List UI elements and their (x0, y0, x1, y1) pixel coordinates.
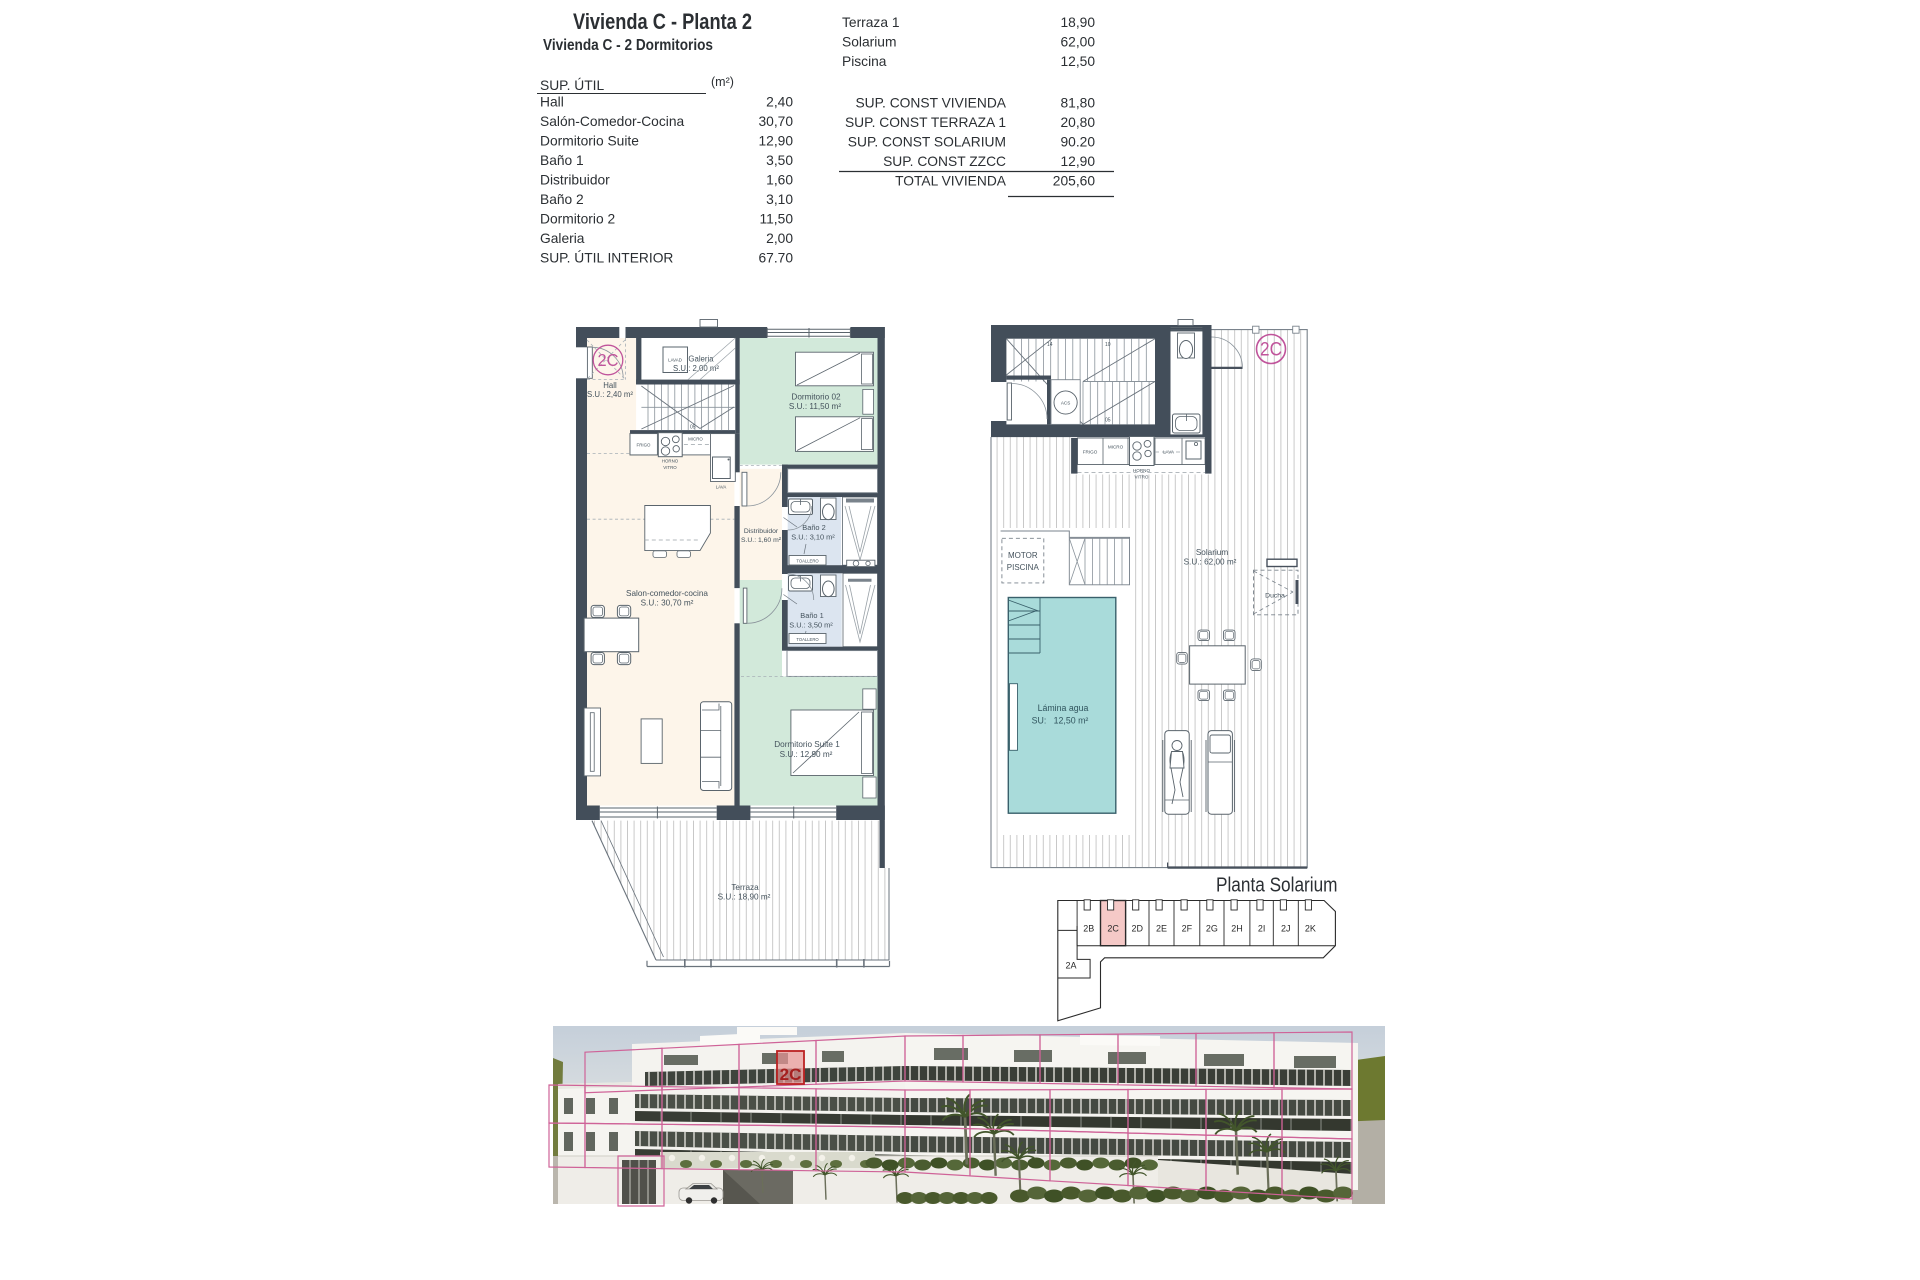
svg-text:S.U.: 1,60 m²: S.U.: 1,60 m² (741, 537, 782, 544)
svg-text:2I: 2I (1258, 924, 1266, 934)
svg-text:12,50: 12,50 (1060, 54, 1095, 69)
svg-text:LAVAD: LAVAD (668, 358, 682, 363)
svg-text:SUP. CONST ZZCC: SUP. CONST ZZCC (883, 154, 1006, 169)
svg-text:2C: 2C (1260, 340, 1282, 361)
svg-text:2A: 2A (1065, 961, 1076, 971)
svg-text:05: 05 (690, 425, 696, 431)
svg-text:FRIGO: FRIGO (637, 443, 651, 448)
svg-text:2E: 2E (1156, 924, 1167, 934)
svg-text:3,50: 3,50 (766, 153, 793, 168)
svg-text:SUP. ÚTIL: SUP. ÚTIL (540, 77, 604, 93)
svg-text:14: 14 (1047, 342, 1053, 348)
svg-text:HORNO: HORNO (662, 459, 679, 464)
svg-text:Dormitorio Suite 1: Dormitorio Suite 1 (774, 740, 840, 749)
svg-text:PISCINA: PISCINA (1007, 563, 1040, 572)
svg-text:S.U.: 3,50 m²: S.U.: 3,50 m² (789, 621, 833, 630)
svg-text:Baño 1: Baño 1 (800, 611, 823, 620)
svg-text:SUP. ÚTIL INTERIOR: SUP. ÚTIL INTERIOR (540, 250, 673, 266)
svg-text:10: 10 (1105, 342, 1111, 348)
svg-text:Baño 2: Baño 2 (540, 192, 584, 207)
svg-text:S.U.: 12,90 m²: S.U.: 12,90 m² (780, 750, 833, 759)
svg-text:S.U.: 30,70 m²: S.U.: 30,70 m² (641, 599, 694, 608)
svg-text:3,10: 3,10 (766, 192, 793, 207)
svg-text:2,00: 2,00 (766, 231, 793, 246)
svg-text:TOALLERO: TOALLERO (796, 637, 819, 642)
svg-text:Solarium: Solarium (1196, 548, 1228, 557)
svg-text:TOALLERO: TOALLERO (796, 559, 819, 564)
svg-text:Distribuidor: Distribuidor (744, 528, 779, 535)
svg-text:S.U.: 18,90 m²: S.U.: 18,90 m² (718, 893, 771, 902)
svg-text:2F: 2F (1182, 924, 1193, 934)
svg-text:2K: 2K (1305, 924, 1316, 934)
svg-text:LAVA: LAVA (716, 485, 727, 490)
svg-text:S.U.: 2,40 m²: S.U.: 2,40 m² (587, 390, 633, 399)
svg-text:SUP. CONST SOLARIUM: SUP. CONST SOLARIUM (848, 135, 1006, 150)
svg-text:20,80: 20,80 (1060, 115, 1095, 130)
svg-text:TOTAL VIVIENDA: TOTAL VIVIENDA (895, 174, 1007, 189)
svg-text:2D: 2D (1132, 924, 1144, 934)
svg-text:SUP. CONST TERRAZA 1: SUP. CONST TERRAZA 1 (845, 115, 1006, 130)
svg-text:2C: 2C (1107, 924, 1119, 934)
svg-text:Vivienda C - Planta 2: Vivienda C - Planta 2 (573, 9, 752, 34)
svg-text:MICRO: MICRO (1108, 445, 1124, 450)
svg-text:Salon-comedor-cocina: Salon-comedor-cocina (626, 589, 708, 598)
svg-text:2H: 2H (1231, 924, 1243, 934)
svg-text:Piscina: Piscina (842, 54, 887, 69)
svg-text:Vivienda C - 2 Dormitorios: Vivienda C - 2 Dormitorios (543, 37, 713, 54)
svg-text:90.20: 90.20 (1060, 135, 1095, 150)
svg-text:Salón-Comedor-Cocina: Salón-Comedor-Cocina (540, 114, 684, 129)
svg-text:Solarium: Solarium (842, 35, 896, 50)
svg-text:VITRO: VITRO (1134, 475, 1148, 480)
svg-text:81,80: 81,80 (1060, 96, 1095, 111)
svg-text:Distribuidor: Distribuidor (540, 173, 610, 188)
svg-text:1,60: 1,60 (766, 173, 793, 188)
svg-text:Baño 1: Baño 1 (540, 153, 584, 168)
svg-text:MOTOR: MOTOR (1008, 551, 1038, 560)
svg-text:2C: 2C (598, 350, 619, 370)
svg-text:MICRO: MICRO (688, 437, 703, 442)
svg-text:Terraza 1: Terraza 1 (842, 15, 900, 30)
svg-text:2C: 2C (780, 1065, 802, 1084)
svg-text:Ducha: Ducha (1265, 593, 1285, 600)
svg-text:S.U.: 11,50 m²: S.U.: 11,50 m² (789, 402, 841, 411)
svg-text:FRIGO: FRIGO (1083, 450, 1098, 455)
svg-text:18,90: 18,90 (1060, 15, 1095, 30)
svg-text:Terraza: Terraza (731, 883, 759, 892)
svg-text:VITRO: VITRO (663, 465, 677, 470)
svg-text:Dormitorio 2: Dormitorio 2 (540, 212, 615, 227)
svg-text:2J: 2J (1281, 924, 1291, 934)
svg-text:11,50: 11,50 (759, 212, 793, 227)
svg-text:30,70: 30,70 (758, 114, 793, 129)
svg-text:Baño 2: Baño 2 (802, 523, 825, 532)
svg-text:Galeria: Galeria (688, 355, 714, 364)
svg-text:67.70: 67.70 (758, 251, 793, 266)
svg-text:SUP. CONST VIVIENDA: SUP. CONST VIVIENDA (855, 96, 1006, 111)
svg-text:12,90: 12,90 (758, 134, 793, 149)
svg-text:(m²): (m²) (711, 75, 734, 89)
svg-text:2,40: 2,40 (766, 95, 793, 110)
svg-text:Hall: Hall (603, 381, 617, 390)
svg-text:2G: 2G (1206, 924, 1218, 934)
svg-text:ACS: ACS (1061, 401, 1070, 406)
svg-text:12,90: 12,90 (1060, 154, 1095, 169)
svg-text:2B: 2B (1083, 924, 1094, 934)
svg-text:S.U.: 62,00 m²: S.U.: 62,00 m² (1184, 558, 1237, 567)
svg-text:Hall: Hall (540, 95, 564, 110)
svg-text:Galeria: Galeria (540, 231, 585, 246)
svg-text:Planta Solarium: Planta Solarium (1216, 874, 1338, 897)
svg-text:205,60: 205,60 (1053, 174, 1096, 189)
svg-text:S.U.: 3,10 m²: S.U.: 3,10 m² (791, 533, 835, 542)
svg-text:05: 05 (1105, 418, 1111, 424)
svg-text:Dormitorio Suite: Dormitorio Suite (540, 134, 639, 149)
svg-text:Dormitorio 02: Dormitorio 02 (791, 393, 841, 402)
svg-text:62,00: 62,00 (1060, 35, 1095, 50)
svg-text:SU: 12,50 m²: SU: 12,50 m² (1032, 716, 1089, 726)
svg-text:Lámina agua: Lámina agua (1038, 703, 1089, 713)
